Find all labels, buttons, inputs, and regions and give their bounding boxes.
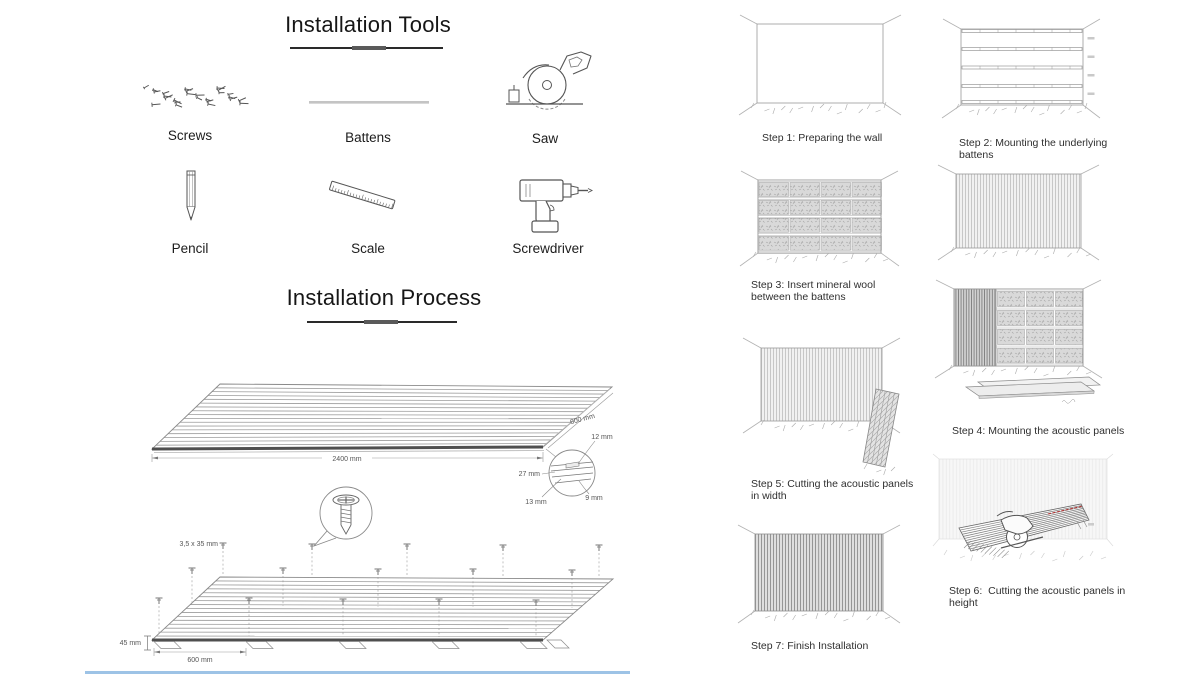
panel-mounting-diagram: 3,5 x 35 mm 45 mm 600 mm bbox=[50, 480, 650, 675]
step-7-figure bbox=[733, 521, 918, 631]
step-6-caption: Step 6: Cutting the acoustic panels in h… bbox=[949, 586, 1127, 609]
batten-spacing-dimension: 600 mm bbox=[154, 648, 246, 664]
tools-title-underline-accent bbox=[352, 46, 386, 50]
scale-icon bbox=[328, 178, 404, 216]
batten-height-dimension: 45 mm bbox=[120, 636, 151, 650]
process-section-title: Installation Process bbox=[234, 285, 534, 311]
battens-icon bbox=[308, 98, 430, 108]
step-6-figure bbox=[931, 454, 1116, 580]
tool-label-screwdriver: Screwdriver bbox=[478, 241, 618, 256]
step-3-caption: Step 3: Insert mineral wool between the … bbox=[751, 280, 913, 303]
batten-spacing-label: 600 mm bbox=[187, 657, 212, 664]
total-thickness-label: 27 mm bbox=[519, 471, 541, 478]
step-7-caption: Step 7: Finish Installation bbox=[751, 641, 911, 653]
step-5-figure bbox=[733, 321, 923, 477]
tools-section-title: Installation Tools bbox=[228, 12, 508, 38]
step-2-figure bbox=[928, 6, 1113, 136]
length-dimension: 2400 mm bbox=[152, 452, 543, 463]
step-4-figure bbox=[926, 279, 1118, 419]
installation-guide-page: Installation Tools Screws Battens Saw Pe… bbox=[0, 0, 1200, 675]
step-4-caption: Step 4: Mounting the acoustic panels bbox=[952, 426, 1127, 438]
screwdriver-icon bbox=[516, 171, 594, 237]
batten-spacing-marks bbox=[1088, 37, 1095, 95]
step-5-caption: Step 5: Cutting the acoustic panels in w… bbox=[751, 479, 919, 502]
batten-height-label: 45 mm bbox=[120, 640, 142, 647]
step-1-figure bbox=[733, 8, 908, 130]
step-1-caption: Step 1: Preparing the wall bbox=[762, 133, 912, 145]
saw-icon bbox=[503, 48, 595, 120]
tool-label-screws: Screws bbox=[120, 128, 260, 143]
bottom-accent-line bbox=[85, 671, 630, 674]
panel-length-label: 2400 mm bbox=[332, 456, 361, 463]
step-2-caption: Step 2: Mounting the underlying battens bbox=[959, 138, 1114, 161]
panels-mounted-figure bbox=[928, 164, 1113, 266]
screw-size-label: 3,5 x 35 mm bbox=[179, 541, 218, 548]
process-title-underline-accent bbox=[364, 320, 398, 324]
screw-callout-bubble bbox=[314, 487, 372, 546]
screws-icon bbox=[138, 82, 253, 118]
tool-label-scale: Scale bbox=[298, 241, 438, 256]
tool-label-battens: Battens bbox=[298, 130, 438, 145]
tool-label-saw: Saw bbox=[475, 131, 615, 146]
pencil-icon bbox=[178, 168, 204, 226]
panels-on-floor bbox=[966, 377, 1100, 403]
tool-label-pencil: Pencil bbox=[120, 241, 260, 256]
step-3-figure bbox=[733, 168, 913, 272]
slat-width-label: 12 mm bbox=[591, 434, 613, 441]
